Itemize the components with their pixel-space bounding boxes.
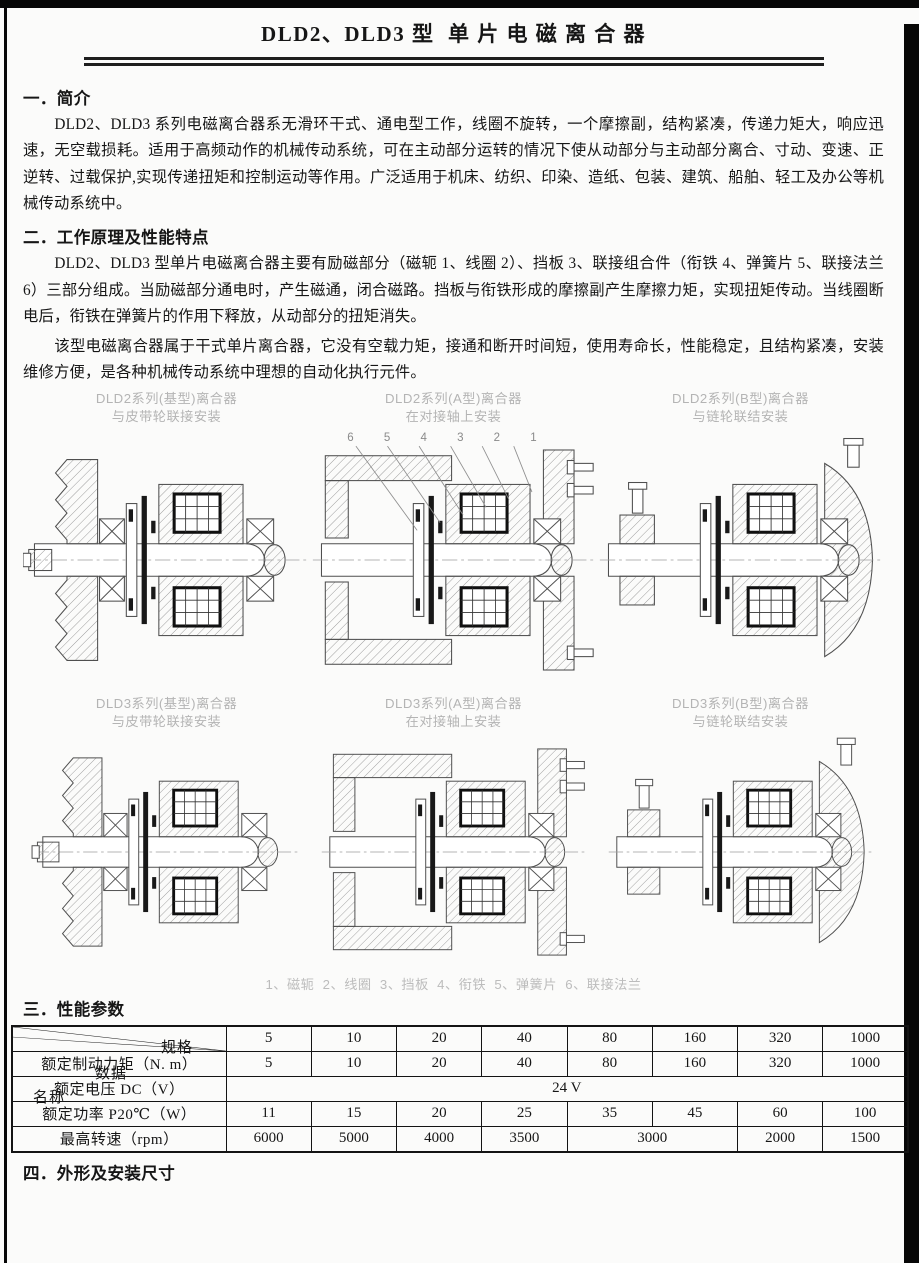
spec-column-header: 80 <box>567 1026 652 1052</box>
clutch-cross-section-drawing <box>310 731 597 973</box>
caption-line: DLD3系列(B型)离合器 <box>597 695 884 713</box>
spec-column-header: 5 <box>226 1026 311 1052</box>
spec-column-header: 160 <box>652 1026 737 1052</box>
page-title: DLD2、DLD3 型 单 片 电 磁 离 合 器 <box>23 18 884 48</box>
caption-line: DLD2系列(A型)离合器 <box>310 390 597 408</box>
figure-caption: DLD2系列(A型)离合器 在对接轴上安装 <box>310 390 597 425</box>
figure-dld3-base: DLD3系列(基型)离合器 与皮带轮联接安装 <box>23 695 310 972</box>
caption-line: 与皮带轮联接安装 <box>23 408 310 426</box>
value-cell: 80 <box>567 1051 652 1076</box>
part-number: 1 <box>530 432 536 444</box>
figure-dld2-a: DLD2系列(A型)离合器 在对接轴上安装 6 5 4 3 2 1 <box>310 390 597 695</box>
table-corner-cell: 规格 数据 名称 <box>12 1026 226 1052</box>
figure-row-1: DLD2系列(基型)离合器 与皮带轮联接安装 DLD2系列(A型)离合器 在对接… <box>23 390 884 695</box>
page-content: DLD2、DLD3 型 单 片 电 磁 离 合 器 一．简介 DLD2、DLD3… <box>7 8 904 1263</box>
caption-line: DLD2系列(基型)离合器 <box>23 390 310 408</box>
value-cell: 45 <box>652 1101 737 1126</box>
value-cell: 320 <box>738 1051 823 1076</box>
intro-paragraph: DLD2、DLD3 系列电磁离合器系无滑环干式、通电型工作，线圈不旋转，一个摩擦… <box>23 112 884 218</box>
rule-line <box>84 57 824 60</box>
spec-column-header: 1000 <box>823 1026 908 1052</box>
figure-caption: DLD2系列(基型)离合器 与皮带轮联接安装 <box>23 390 310 425</box>
value-cell: 100 <box>823 1101 908 1126</box>
figure-caption: DLD3系列(基型)离合器 与皮带轮联接安装 <box>23 695 310 730</box>
figure-dld2-base: DLD2系列(基型)离合器 与皮带轮联接安装 <box>23 390 310 695</box>
value-cell-span: 3000 <box>567 1126 738 1152</box>
table-row-power: 额定功率 P20℃（W） 11 15 20 25 35 45 60 100 <box>12 1101 908 1126</box>
section-3-heading: 三．性能参数 <box>23 996 884 1020</box>
figure-dld3-b: DLD3系列(B型)离合器 与链轮联结安装 <box>597 695 884 972</box>
value-cell: 2000 <box>738 1126 823 1152</box>
principle-paragraph-2: 该型电磁离合器属于干式单片离合器，它没有空载力矩，接通和断开时间短，使用寿命长，… <box>23 334 884 387</box>
value-cell: 6000 <box>226 1126 311 1152</box>
section-1-heading: 一．简介 <box>23 85 884 109</box>
corner-diagonal-lines <box>13 1027 226 1051</box>
part-number: 5 <box>384 432 390 444</box>
value-cell: 25 <box>482 1101 567 1126</box>
table-row-torque: 额定制动力矩（N. m） 5 10 20 40 80 160 320 1000 <box>12 1051 908 1076</box>
rule-line <box>84 63 824 66</box>
figure-row-2: DLD3系列(基型)离合器 与皮带轮联接安装 DLD3系列(A型)离合器 在对接… <box>23 695 884 972</box>
caption-line: 与皮带轮联接安装 <box>23 713 310 731</box>
spec-column-header: 10 <box>311 1026 396 1052</box>
figure-caption: DLD2系列(B型)离合器 与链轮联结安装 <box>597 390 884 425</box>
clutch-cross-section-drawing <box>310 425 597 695</box>
corner-label-spec: 规格 <box>161 1036 193 1057</box>
value-cell: 20 <box>397 1101 482 1126</box>
table-row-speed: 最高转速（rpm） 6000 5000 4000 3500 3000 2000 … <box>12 1126 908 1152</box>
principle-paragraph-1: DLD2、DLD3 型单片电磁离合器主要有励磁部分（磁轭 1、线圈 2）、挡板 … <box>23 251 884 330</box>
scan-border-top <box>0 0 919 8</box>
clutch-cross-section-drawing <box>23 425 310 695</box>
value-cell: 11 <box>226 1101 311 1126</box>
value-cell: 1000 <box>823 1051 908 1076</box>
value-cell: 10 <box>311 1051 396 1076</box>
spec-column-header: 320 <box>738 1026 823 1052</box>
value-cell: 35 <box>567 1101 652 1126</box>
caption-line: DLD3系列(基型)离合器 <box>23 695 310 713</box>
spec-column-header: 20 <box>397 1026 482 1052</box>
figure-caption: DLD3系列(B型)离合器 与链轮联结安装 <box>597 695 884 730</box>
part-number: 3 <box>457 432 463 444</box>
value-cell: 4000 <box>397 1126 482 1152</box>
clutch-cross-section-drawing <box>597 425 884 695</box>
table-header-row: 规格 数据 名称 5 10 20 40 80 160 320 1000 <box>12 1026 908 1052</box>
value-cell: 1500 <box>823 1126 908 1152</box>
caption-line: 在对接轴上安装 <box>310 408 597 426</box>
value-cell: 15 <box>311 1101 396 1126</box>
value-cell: 5 <box>226 1051 311 1076</box>
value-cell: 40 <box>482 1051 567 1076</box>
figure-caption: DLD3系列(A型)离合器 在对接轴上安装 <box>310 695 597 730</box>
part-number: 4 <box>420 432 426 444</box>
caption-line: 在对接轴上安装 <box>310 713 597 731</box>
value-cell: 20 <box>397 1051 482 1076</box>
row-label: 最高转速（rpm） <box>12 1126 226 1152</box>
part-number: 6 <box>347 432 353 444</box>
value-cell: 5000 <box>311 1126 396 1152</box>
corner-label-data: 数据 <box>95 1062 127 1083</box>
document-page: DLD2、DLD3 型 单 片 电 磁 离 合 器 一．简介 DLD2、DLD3… <box>0 0 919 1263</box>
performance-table: 规格 数据 名称 5 10 20 40 80 160 320 1000 额定制动… <box>11 1025 909 1153</box>
part-number: 2 <box>494 432 500 444</box>
spec-column-header: 40 <box>482 1026 567 1052</box>
section-2-heading: 二．工作原理及性能特点 <box>23 224 884 248</box>
corner-label-name: 名称 <box>33 1086 65 1107</box>
clutch-cross-section-drawing <box>597 731 884 973</box>
figure-dld2-b: DLD2系列(B型)离合器 与链轮联结安装 <box>597 390 884 695</box>
value-cell: 160 <box>652 1051 737 1076</box>
title-double-rule <box>84 57 824 66</box>
figure-grid: DLD2系列(基型)离合器 与皮带轮联接安装 DLD2系列(A型)离合器 在对接… <box>23 390 884 972</box>
value-cell-span: 24 V <box>226 1076 908 1101</box>
caption-line: 与链轮联结安装 <box>597 713 884 731</box>
clutch-cross-section-drawing <box>23 731 310 973</box>
section-4-heading: 四．外形及安装尺寸 <box>23 1160 884 1184</box>
caption-line: 与链轮联结安装 <box>597 408 884 426</box>
caption-line: DLD2系列(B型)离合器 <box>597 390 884 408</box>
part-number-labels: 6 5 4 3 2 1 <box>347 432 536 444</box>
caption-line: DLD3系列(A型)离合器 <box>310 695 597 713</box>
table-row-voltage: 额定电压 DC（V） 24 V <box>12 1076 908 1101</box>
figure-legend: 1、磁轭 2、线圈 3、挡板 4、衔铁 5、弹簧片 6、联接法兰 <box>23 974 884 993</box>
value-cell: 3500 <box>482 1126 567 1152</box>
figure-dld3-a: DLD3系列(A型)离合器 在对接轴上安装 <box>310 695 597 972</box>
value-cell: 60 <box>738 1101 823 1126</box>
